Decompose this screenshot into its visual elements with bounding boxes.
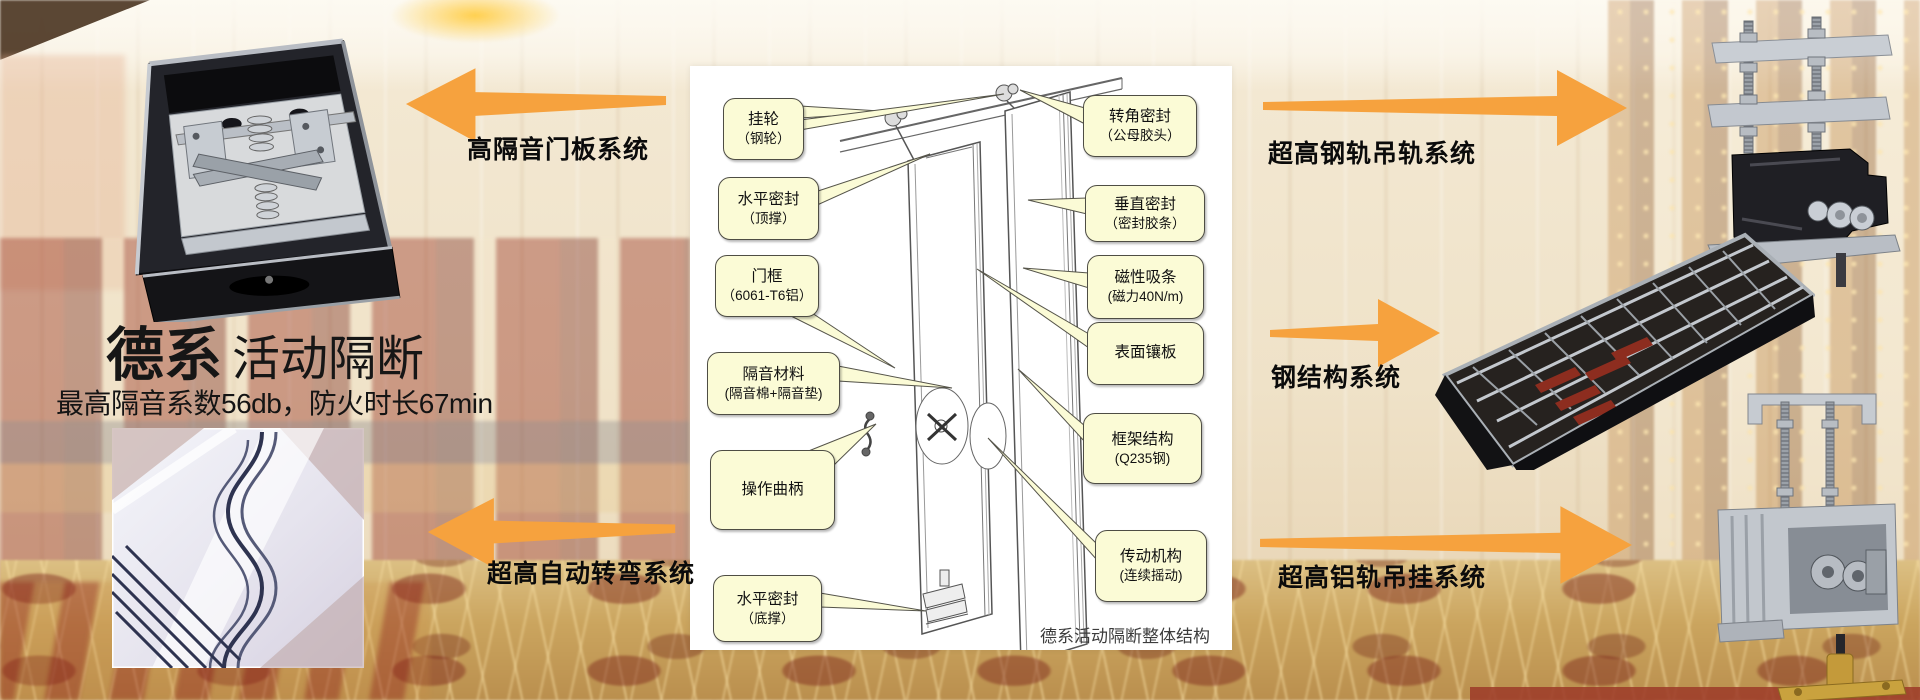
callout-line2: （6061-T6铝）: [722, 287, 813, 305]
callout-line2: （顶撑）: [742, 210, 796, 228]
callout-corner-seal: 转角密封 （公母胶头）: [1083, 95, 1197, 157]
callout-horizontal-seal-bottom: 水平密封 （底撑）: [713, 575, 822, 642]
callout-line1: 水平密封: [737, 190, 799, 210]
callout-frame-structure: 框架结构 (Q235钢): [1083, 413, 1202, 484]
callout-line2: （底撑）: [741, 610, 795, 628]
callout-operating-crank: 操作曲柄: [710, 450, 835, 530]
label-door-panel-system: 高隔音门板系统: [467, 130, 649, 166]
callout-line2: （钢轮）: [737, 130, 791, 148]
slide-canvas: 德系活动隔断 最高隔音系数56db，防火时长67min: [0, 0, 1920, 700]
callout-surface-panel: 表面镶板: [1087, 322, 1204, 385]
callout-vertical-seal: 垂直密封 （密封胶条）: [1085, 185, 1205, 242]
callout-hanging-wheel: 挂轮 （钢轮）: [723, 98, 804, 160]
product-subtitle: 最高隔音系数56db，防火时长67min: [56, 382, 493, 422]
callout-line1: 水平密封: [736, 590, 798, 610]
callout-line1: 框架结构: [1111, 430, 1173, 450]
callout-line1: 传动机构: [1120, 547, 1182, 567]
callout-line1: 磁性吸条: [1114, 268, 1176, 288]
aluminum-track-hanger-photo: [1690, 392, 1915, 700]
callout-line2: (磁力40N/m): [1108, 288, 1184, 306]
label-aluminum-rail-system: 超高铝轨吊挂系统: [1278, 558, 1486, 594]
callout-line2: (连续摇动): [1120, 567, 1183, 585]
callout-magnetic-strip: 磁性吸条 (磁力40N/m): [1087, 255, 1204, 319]
callout-door-frame: 门框 （6061-T6铝）: [715, 255, 819, 317]
door-panel-mechanism-photo: [115, 2, 405, 322]
callout-line1: 表面镶板: [1114, 343, 1176, 363]
callout-line2: (Q235钢): [1115, 450, 1171, 468]
callout-drive-mechanism: 传动机构 (连续摇动): [1095, 530, 1207, 602]
callout-line1: 挂轮: [748, 110, 779, 130]
product-title-bold: 德系: [106, 323, 222, 388]
callout-sound-insulation: 隔音材料 (隔音棉+隔音垫): [707, 352, 840, 415]
callout-line1: 隔音材料: [742, 365, 804, 385]
curved-track-photo: [112, 428, 364, 668]
label-steel-structure-system: 钢结构系统: [1271, 358, 1401, 394]
callout-line2: （密封胶条）: [1105, 215, 1186, 233]
callout-line2: （公母胶头）: [1100, 127, 1181, 145]
product-title-rest: 活动隔断: [232, 333, 424, 386]
diagram-caption: 德系活动隔断整体结构: [1040, 622, 1235, 647]
ceiling-light-glow: [390, 0, 560, 43]
callout-line1: 操作曲柄: [741, 480, 803, 500]
label-steel-rail-system: 超高钢轨吊轨系统: [1268, 134, 1476, 170]
callout-line2: (隔音棉+隔音垫): [725, 385, 823, 403]
product-title: 德系活动隔断: [106, 308, 424, 392]
callout-horizontal-seal-top: 水平密封 （顶撑）: [718, 177, 819, 240]
callout-line1: 门框: [751, 267, 782, 287]
callout-line1: 垂直密封: [1114, 195, 1176, 215]
callout-line1: 转角密封: [1109, 107, 1171, 127]
label-auto-turning-system: 超高自动转弯系统: [487, 554, 695, 590]
